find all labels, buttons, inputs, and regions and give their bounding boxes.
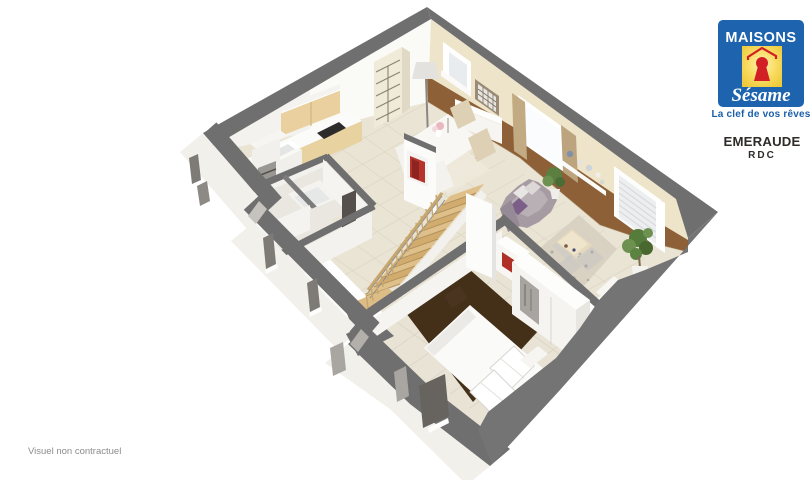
svg-text:MAISONS: MAISONS bbox=[725, 30, 796, 46]
svg-text:EMERAUDE: EMERAUDE bbox=[723, 134, 800, 149]
svg-text:RDC: RDC bbox=[748, 150, 776, 161]
svg-text:Sésame: Sésame bbox=[731, 85, 791, 106]
svg-text:La clef de vos rêves: La clef de vos rêves bbox=[711, 109, 810, 120]
